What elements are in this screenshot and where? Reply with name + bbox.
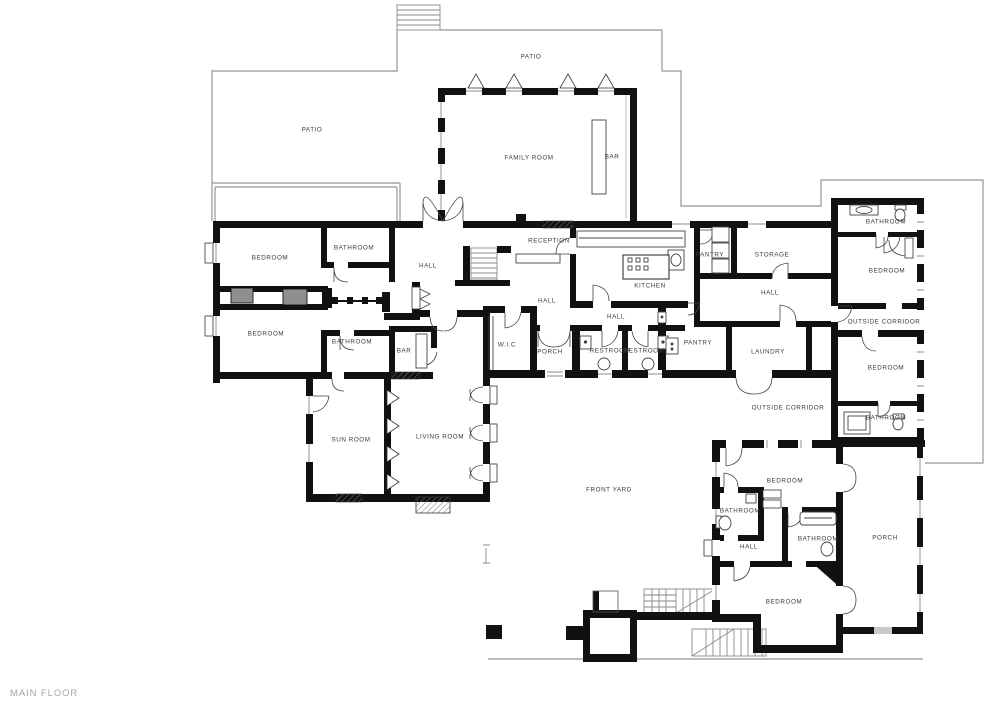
label-bathroom-nw: BATHROOM	[334, 245, 374, 252]
label-bedroom-se-lower: BEDROOM	[766, 599, 802, 606]
living-french-door-1	[470, 387, 483, 403]
label-family-room: FAMILY ROOM	[504, 155, 553, 162]
fixtures-layer	[231, 74, 906, 634]
label-bathroom-se-center: BATHROOM	[798, 536, 838, 543]
patio-stairs	[397, 5, 440, 30]
label-hall-center: HALL	[538, 298, 556, 305]
fireplace-hatch	[416, 497, 450, 513]
porch-se-door-2	[843, 586, 856, 614]
label-front-yard: FRONT YARD	[586, 487, 632, 494]
label-storage: STORAGE	[755, 252, 790, 259]
label-bathroom-se-left: BATHROOM	[720, 508, 760, 515]
label-reception: RECEPTION	[528, 238, 570, 245]
label-hall-south: HALL	[740, 544, 758, 551]
label-patio-left: PATIO	[302, 127, 323, 134]
label-pantry-upper: PANTRY	[696, 252, 724, 259]
label-bedroom-nw: BEDROOM	[252, 255, 288, 262]
label-bathroom-east: BATHROOM	[866, 415, 906, 422]
label-patio-top: PATIO	[521, 54, 542, 61]
patio-deck-edge	[212, 183, 400, 221]
label-bedroom-west: BEDROOM	[248, 331, 284, 338]
living-french-door-3	[470, 465, 483, 481]
porch-double-door	[538, 331, 570, 347]
floor-plan-canvas	[0, 0, 992, 712]
floor-plan-page: PATIO PATIO FAMILY ROOM BAR BEDROOM BATH…	[0, 0, 992, 712]
label-bar-nook: BAR	[397, 348, 412, 355]
bar-nook-counter	[416, 334, 427, 368]
label-bathroom-west: BATHROOM	[332, 339, 372, 346]
floor-title: MAIN FLOOR	[10, 688, 78, 699]
label-bar-family: BAR	[605, 154, 620, 161]
label-bedroom-ne: BEDROOM	[869, 268, 905, 275]
patio-boundary-left	[212, 30, 397, 183]
label-bedroom-east: BEDROOM	[868, 365, 904, 372]
bathroom-se-center-fixtures	[800, 512, 836, 556]
label-wic: W.I.C	[498, 342, 516, 349]
laundry-double-door	[736, 378, 772, 394]
label-pantry-lower: PANTRY	[684, 340, 712, 347]
label-hall-mid: HALL	[607, 314, 625, 321]
label-porch-se: PORCH	[872, 535, 898, 542]
reception-stairs	[471, 248, 497, 280]
living-french-door-2	[470, 425, 483, 441]
label-hall-northeast: HALL	[761, 290, 779, 297]
label-porch-front: PORCH	[537, 349, 563, 356]
porch-se-door-1	[843, 464, 856, 492]
pantry-shelves	[712, 227, 729, 273]
label-sun-room: SUN ROOM	[331, 437, 370, 444]
label-hall-west: HALL	[419, 263, 437, 270]
label-outside-corridor-east: OUTSIDE CORRIDOR	[752, 405, 825, 412]
label-bedroom-se-upper: BEDROOM	[767, 478, 803, 485]
corridor-railing	[332, 297, 382, 304]
label-kitchen: KITCHEN	[634, 283, 666, 290]
walls-layer	[213, 88, 925, 662]
reception-desk	[516, 254, 560, 263]
label-laundry: LAUNDRY	[751, 349, 785, 356]
hatched-window-top	[543, 221, 573, 228]
kitchen-island	[623, 255, 669, 279]
front-yard-stairs-upper	[644, 589, 715, 613]
porch-step	[874, 627, 892, 634]
label-outside-corridor-ne: OUTSIDE CORRIDOR	[848, 319, 921, 326]
hearth-hatch	[336, 494, 362, 502]
hatched-window-living	[392, 372, 420, 379]
label-living-room: LIVING ROOM	[416, 434, 464, 441]
label-bathroom-ne: BATHROOM	[866, 219, 906, 226]
label-restroom-2: RESTROOM	[624, 348, 665, 355]
